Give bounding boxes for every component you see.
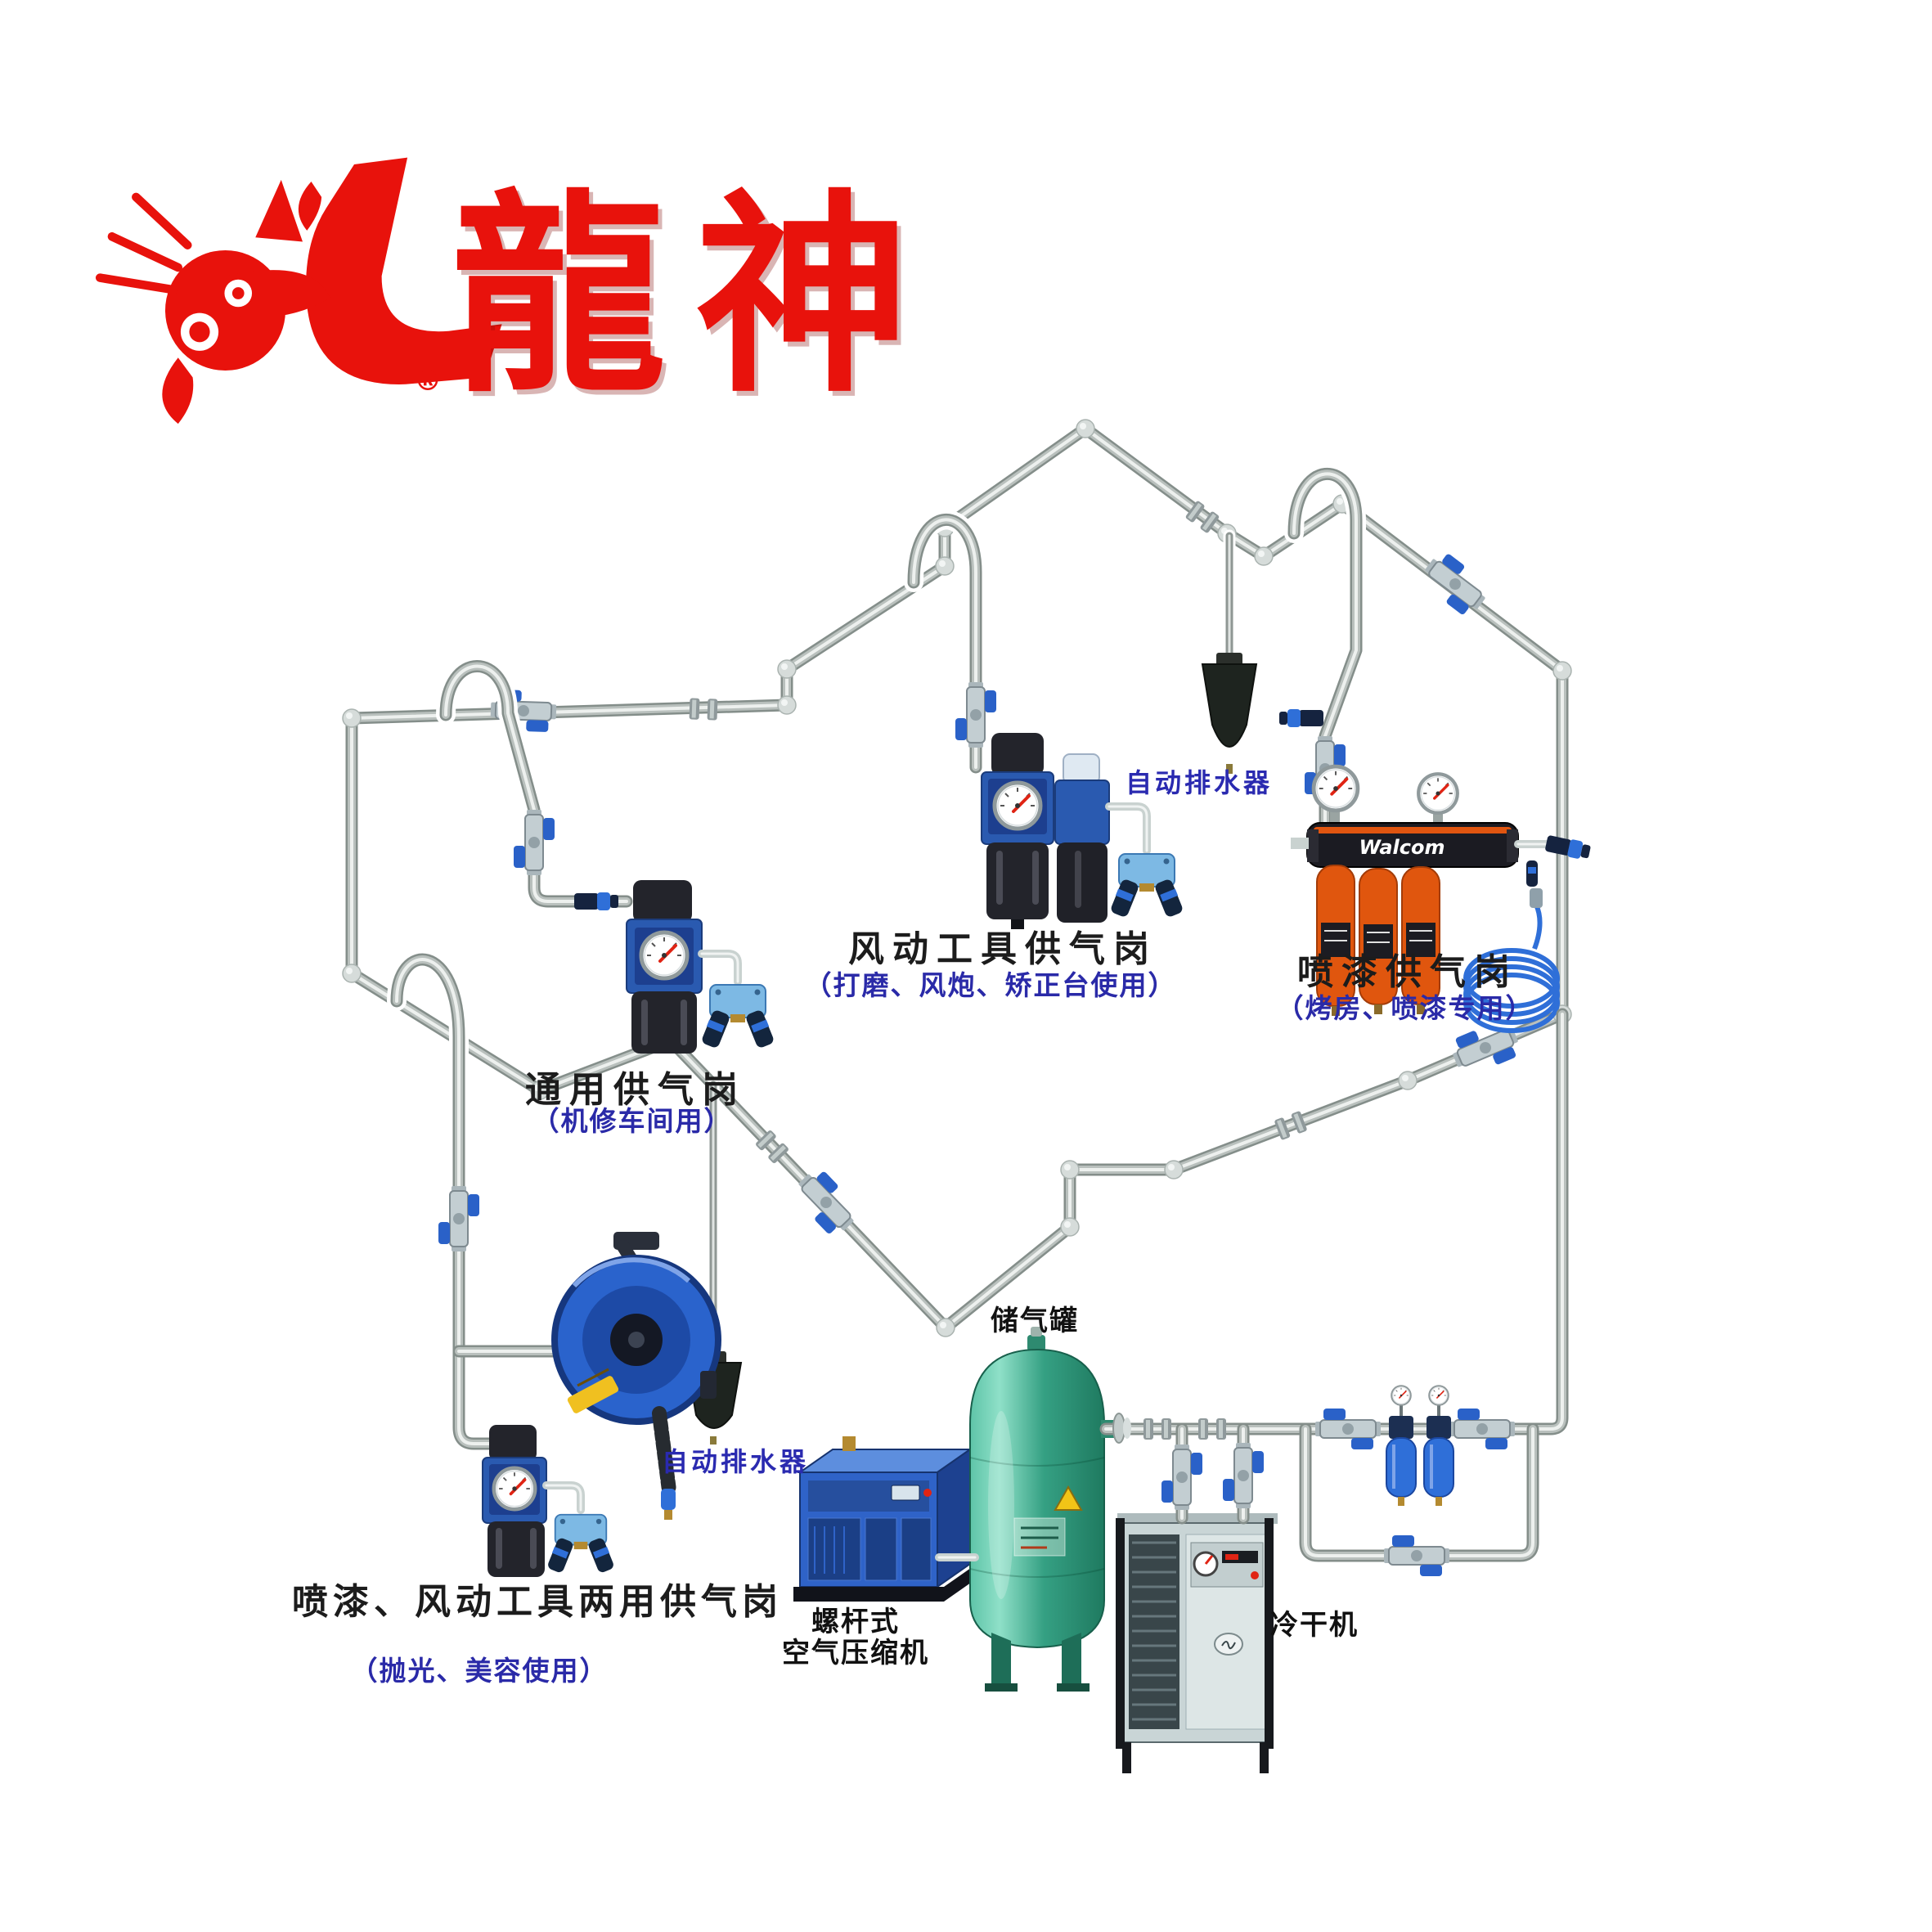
air-tank	[970, 1327, 1116, 1692]
screw-compressor	[793, 1436, 977, 1602]
pneumatic-station-subtitle: （打磨、风炮、矫正台使用）	[805, 964, 1177, 1003]
refrigerated-dryer	[1116, 1513, 1278, 1773]
brand-logo-text: 龍神	[452, 123, 939, 433]
general-station-subtitle: （机修车间用）	[532, 1099, 733, 1139]
auto-drain-top-label: 自动排水器	[1126, 762, 1273, 800]
dual-station-unit	[483, 1232, 718, 1577]
walcom-brand-text: Walcom	[1359, 836, 1445, 859]
diagram-canvas: Walcom	[0, 0, 1932, 1932]
inline-air-filters	[1386, 1386, 1453, 1506]
dryer-label: 冷干机	[1270, 1610, 1359, 1641]
dual-filter-regulator	[483, 1425, 615, 1577]
general-station-unit	[627, 880, 775, 1054]
dual-station-title: 喷漆、风动工具两用供气岗	[292, 1572, 783, 1624]
air-tank-label: 储气罐	[991, 1305, 1079, 1337]
compressor-label-line2: 空气压缩机	[782, 1638, 929, 1669]
registered-trademark-mark: ®	[414, 365, 442, 398]
auto-drain-top	[1202, 653, 1256, 774]
compressor-label: 螺杆式 空气压缩机	[782, 1606, 929, 1669]
auto-drain-bottom-label: 自动排水器	[662, 1441, 809, 1479]
dual-station-subtitle: （抛光、美容使用）	[351, 1649, 609, 1688]
compressor-label-line1: 螺杆式	[782, 1606, 929, 1638]
paint-station-subtitle: （烤房、喷漆专用）	[1277, 986, 1534, 1026]
quick-coupler-fittings	[574, 709, 1323, 910]
